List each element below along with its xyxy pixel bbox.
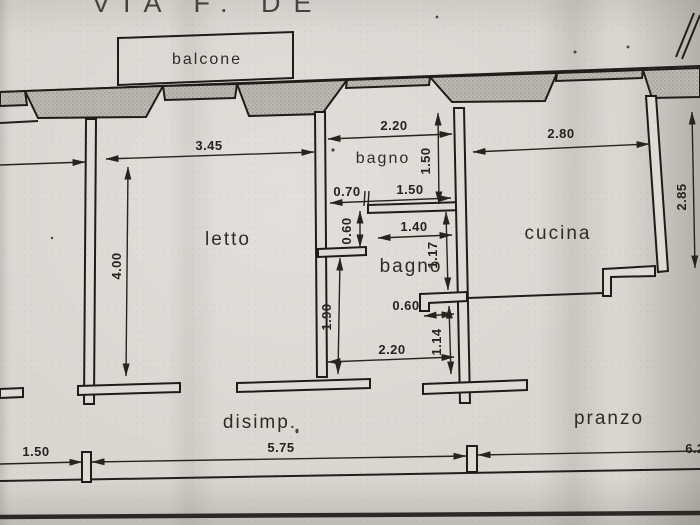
- lower-wall-line: [0, 469, 700, 481]
- dim-line-letto-depth: [126, 167, 128, 376]
- dim-line-bagno1-depth: [438, 113, 439, 204]
- room-label-bagno-top: bagno: [356, 150, 411, 167]
- wall-letto-left: [84, 119, 96, 404]
- room-label-balcone: balcone: [172, 51, 242, 68]
- dim-line-bagno2-lower: [449, 306, 451, 374]
- dim-bagno1-inner: 1.50: [396, 182, 423, 197]
- wall-pier-splayed: [25, 86, 163, 118]
- floor-plan-drawing: VIA F. DE balcone: [0, 0, 700, 525]
- wall-bagno-divider: [368, 202, 463, 213]
- wall-pier-splayed: [237, 80, 347, 116]
- dim-bagno2-door: 0.60: [392, 298, 419, 313]
- dim-cucina-depth: 2.85: [674, 183, 689, 210]
- speck: [574, 51, 577, 54]
- lower-wall-pier: [82, 452, 91, 482]
- dim-line-facade-middle: [92, 456, 466, 462]
- dim-antibagno-depth: 1.90: [319, 303, 334, 330]
- speck: [436, 16, 439, 19]
- lower-wall-pier: [467, 446, 477, 472]
- window-sill: [346, 77, 430, 88]
- wall-bottom-letto: [237, 379, 370, 392]
- dim-line-cucina-depth: [692, 112, 695, 268]
- dim-bagno1-depth: 1.50: [418, 147, 433, 174]
- wall-cucina-right: [646, 96, 668, 272]
- wall-bottom-bagno: [423, 380, 527, 394]
- dim-line-bagno2-upper: [446, 212, 448, 290]
- wall-niche-stub: [318, 247, 366, 257]
- wall-pier-splayed: [430, 73, 557, 102]
- exterior-wall-bottom: [0, 446, 700, 517]
- dim-cucina-width: 2.80: [547, 126, 574, 141]
- dim-antibagno-width: 2.20: [378, 342, 405, 357]
- street-title: VIA F. DE: [92, 0, 325, 18]
- dim-line-facade-left: [0, 462, 82, 464]
- dim-bagno2-lower: 1.14: [429, 328, 444, 356]
- room-label-cucina: cucina: [525, 223, 592, 244]
- interior-walls: [0, 96, 668, 404]
- speck: [295, 429, 298, 434]
- dim-line-left-room: [0, 162, 85, 165]
- inner-wall-line: [0, 121, 38, 123]
- wall-bottom-edge: [0, 388, 23, 398]
- wall-cucina-notch: [603, 266, 655, 296]
- dim-line-cucina-width: [473, 144, 649, 152]
- balcony-door-threshold: [163, 84, 237, 100]
- dim-facade-right: 6.2: [685, 441, 700, 456]
- dim-line-bagno2-width: [378, 235, 452, 238]
- room-label-disimp: disimp.: [223, 412, 297, 433]
- wall-bottom-left: [78, 383, 180, 395]
- balcony: balcone: [118, 32, 293, 85]
- speck: [331, 148, 334, 151]
- wall-bagno-cucina: [454, 108, 470, 403]
- dim-bagno1-width: 2.20: [380, 118, 407, 133]
- room-label-bagno-bottom: bagno: [380, 256, 443, 277]
- dim-facade-left: 1.50: [22, 444, 49, 459]
- dim-niche-depth: 0.60: [339, 217, 354, 244]
- speck: [627, 46, 630, 49]
- scanned-floor-plan: VIA F. DE balcone: [0, 0, 700, 525]
- room-label-pranzo: pranzo: [574, 408, 644, 429]
- building-edge-line: [0, 513, 700, 517]
- dim-line-antibagno-depth: [338, 258, 340, 374]
- wall-pier-splayed: [643, 68, 700, 98]
- dim-line-letto-width: [106, 152, 314, 159]
- dim-line-facade-right: [478, 451, 700, 455]
- wall-pier: [0, 91, 27, 106]
- dim-door-to-bagno1: 0.70: [333, 184, 360, 199]
- dim-tick: [368, 191, 369, 206]
- dim-bagno2-width: 1.40: [400, 219, 427, 234]
- dim-line-bagno1-width: [328, 134, 452, 139]
- wall-letto-right: [315, 112, 327, 377]
- cucina-bottom-line: [468, 293, 603, 298]
- dim-tick: [364, 191, 365, 206]
- window-sill: [556, 70, 643, 81]
- dim-letto-width: 3.45: [195, 138, 222, 153]
- dim-letto-depth: 4.00: [109, 252, 124, 279]
- dim-facade-middle: 5.75: [267, 440, 294, 455]
- exterior-wall-top: [0, 13, 700, 123]
- room-label-letto: letto: [205, 229, 251, 250]
- dim-line-antibagno-width: [328, 357, 454, 362]
- speck: [51, 237, 53, 239]
